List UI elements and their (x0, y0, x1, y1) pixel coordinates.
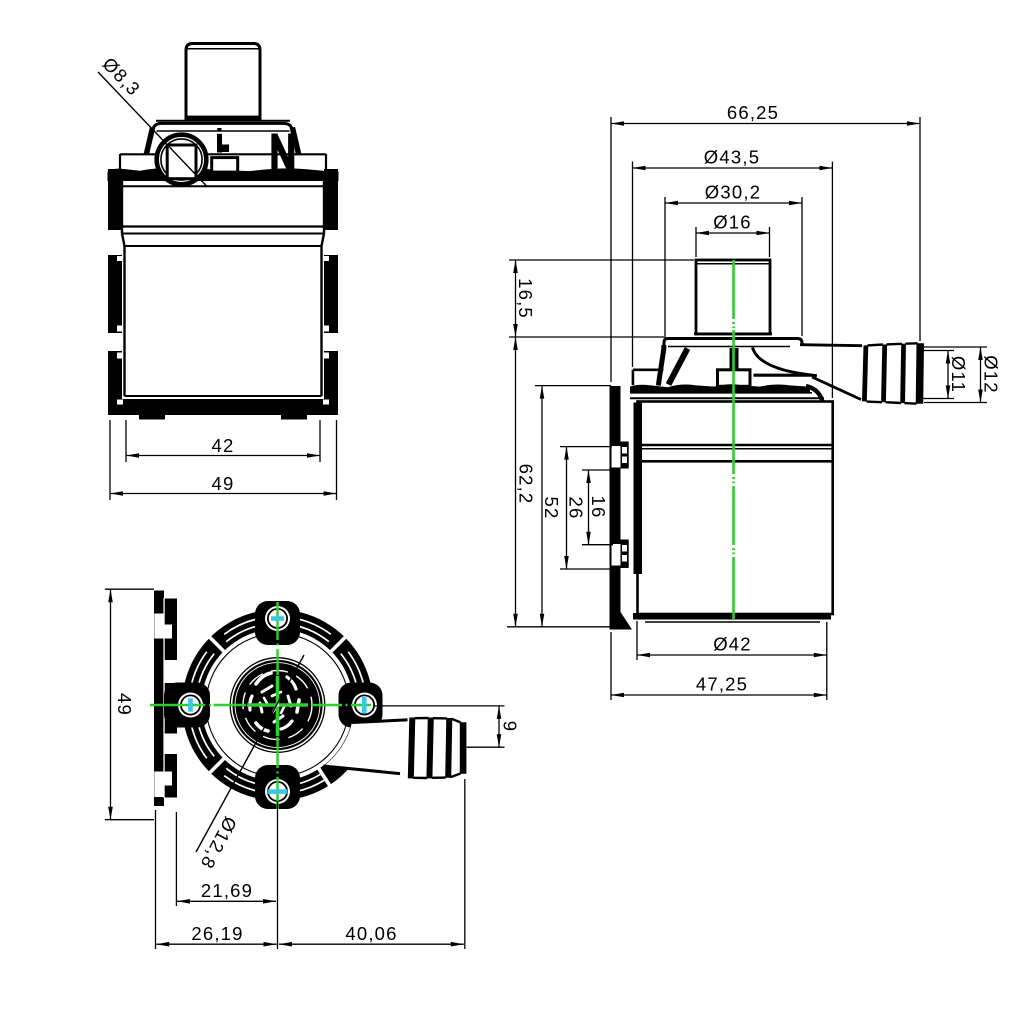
svg-text:62,2: 62,2 (516, 464, 537, 505)
svg-text:26,19: 26,19 (191, 923, 243, 944)
svg-text:Ø11: Ø11 (948, 356, 969, 393)
svg-text:47,25: 47,25 (696, 674, 748, 695)
svg-text:16,5: 16,5 (515, 278, 536, 319)
svg-text:Ø43,5: Ø43,5 (704, 147, 760, 168)
svg-text:26: 26 (566, 497, 587, 520)
svg-text:Ø16: Ø16 (713, 212, 752, 233)
svg-text:Ø42: Ø42 (713, 634, 752, 655)
svg-text:49: 49 (212, 473, 235, 494)
svg-text:52: 52 (541, 497, 562, 520)
svg-text:49: 49 (114, 693, 135, 716)
svg-text:42: 42 (212, 435, 235, 456)
svg-text:66,25: 66,25 (727, 102, 779, 123)
svg-text:21,69: 21,69 (201, 880, 253, 901)
svg-text:40,06: 40,06 (345, 923, 397, 944)
svg-text:9: 9 (500, 721, 521, 733)
svg-text:Ø30,2: Ø30,2 (705, 182, 761, 203)
svg-text:16: 16 (588, 496, 609, 519)
svg-text:Ø12: Ø12 (981, 355, 1002, 394)
